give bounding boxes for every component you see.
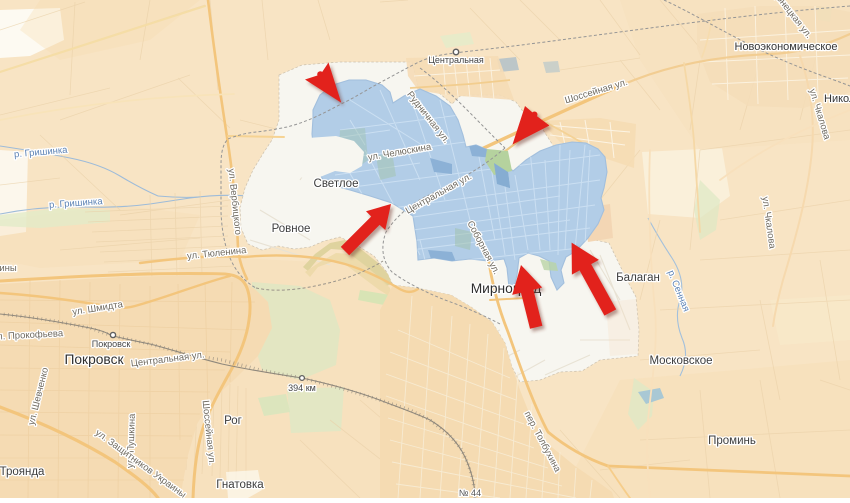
svg-text:Центральная: Центральная (428, 55, 484, 65)
svg-text:Балаган: Балаган (616, 272, 660, 284)
svg-text:Московское: Московское (649, 355, 712, 367)
svg-text:394 км: 394 км (288, 383, 316, 393)
svg-text:Проминь: Проминь (708, 435, 756, 447)
svg-text:№ 44: № 44 (459, 488, 481, 498)
svg-text:ины: ины (0, 263, 17, 274)
svg-text:Николаевка: Николаевка (824, 93, 850, 105)
svg-text:Троянда: Троянда (0, 466, 45, 478)
svg-text:Светлое: Светлое (314, 178, 359, 190)
svg-text:Покровск: Покровск (64, 352, 124, 367)
svg-text:Новоэкономическое: Новоэкономическое (735, 41, 838, 53)
svg-text:Покровск: Покровск (92, 339, 131, 349)
svg-text:Ровное: Ровное (272, 223, 311, 235)
svg-text:Гнатовка: Гнатовка (216, 479, 264, 491)
svg-text:Рог: Рог (224, 415, 242, 427)
